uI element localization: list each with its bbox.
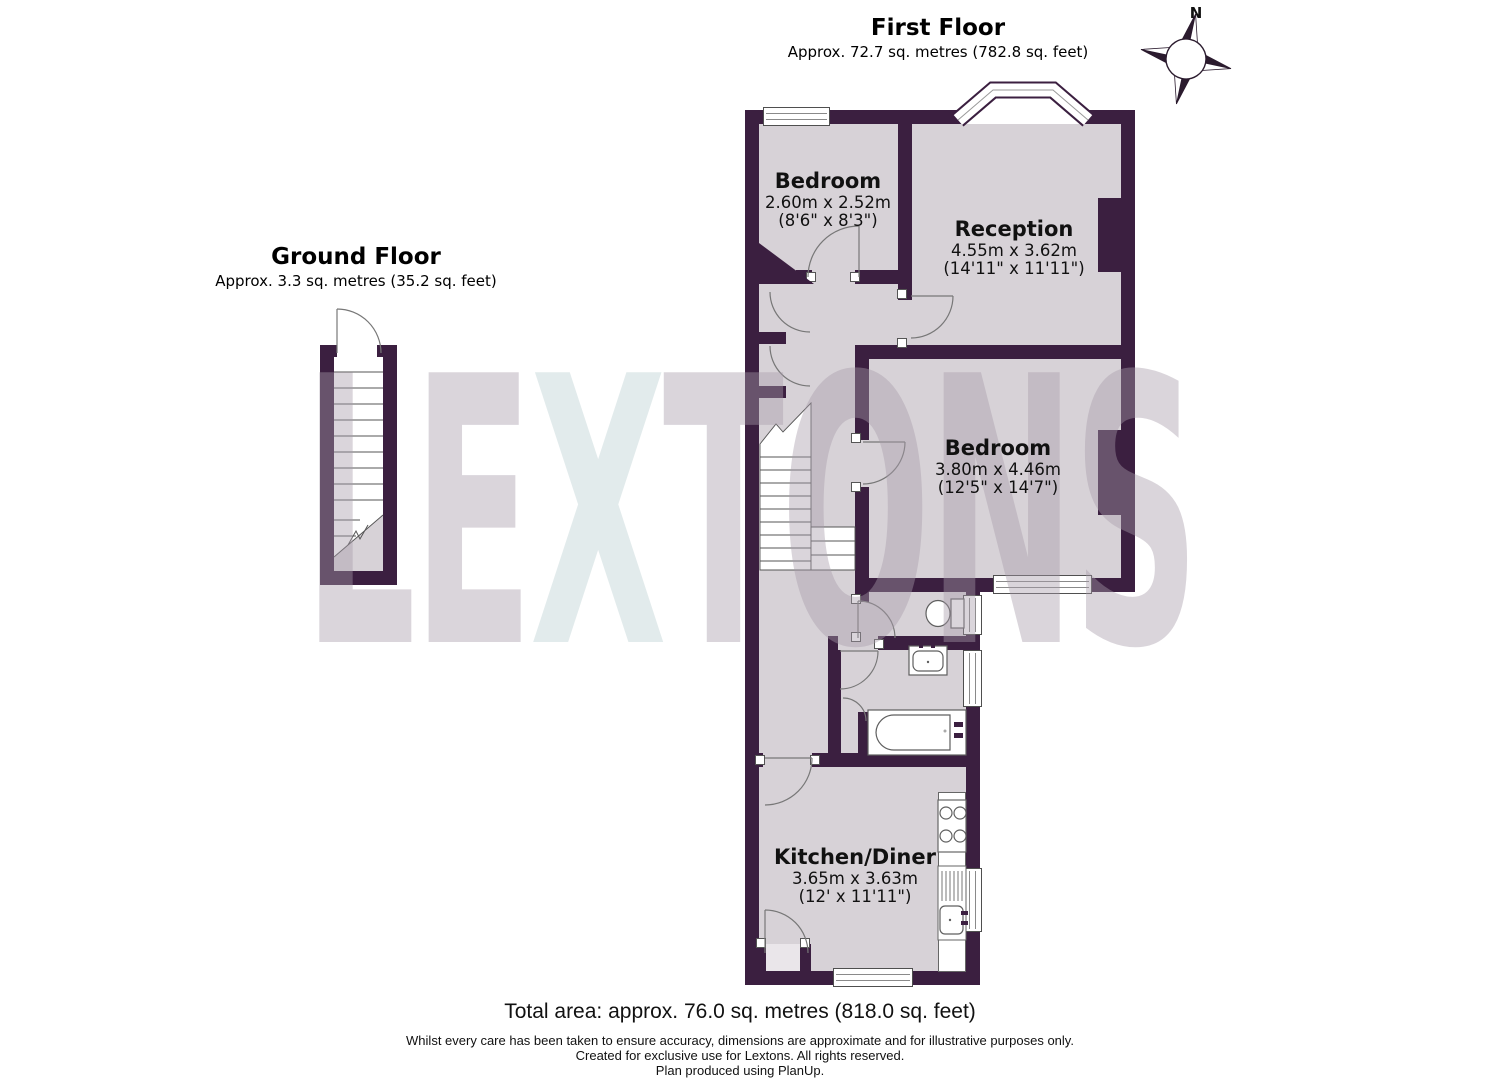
floorplan-canvas: First Floor Approx. 72.7 sq. metres (782… xyxy=(0,0,1485,1080)
chimney-breast xyxy=(1098,198,1123,272)
wall xyxy=(800,944,811,972)
wall xyxy=(855,352,869,440)
first-floor-name: First Floor xyxy=(788,16,1089,40)
first-floor-area: Approx. 72.7 sq. metres (782.8 sq. feet) xyxy=(788,43,1089,61)
wall xyxy=(320,345,337,357)
wall xyxy=(383,345,397,585)
bay-window-outline xyxy=(958,90,1088,120)
room-dim-metric: 4.55m x 3.62m xyxy=(943,242,1084,260)
window xyxy=(993,575,1092,594)
wall xyxy=(828,636,838,650)
plan-footer: Total area: approx. 76.0 sq. metres (818… xyxy=(406,1000,1074,1078)
wall xyxy=(828,650,841,753)
wall xyxy=(320,345,334,585)
room-label-bedroom2: Bedroom 3.80m x 4.46m (12'5" x 14'7") xyxy=(935,437,1061,497)
room-label-bedroom1: Bedroom 2.60m x 2.52m (8'6" x 8'3") xyxy=(765,170,891,230)
compass-icon: N xyxy=(1131,4,1240,114)
gf-door xyxy=(337,309,381,353)
compass-north-label: N xyxy=(1190,4,1203,22)
door-jamb xyxy=(810,755,820,765)
wall xyxy=(878,636,980,650)
wall xyxy=(759,332,786,344)
wall xyxy=(898,110,912,300)
wall xyxy=(745,110,759,985)
wall xyxy=(812,753,980,767)
plan-details-overlay: N xyxy=(0,0,1485,1080)
room-dim-metric: 3.80m x 4.46m xyxy=(935,461,1061,479)
door-jamb xyxy=(851,482,861,492)
entrance-recess xyxy=(766,944,800,971)
window xyxy=(833,968,913,987)
room-dim-imperial: (12'5" x 14'7") xyxy=(935,479,1061,497)
gf-stairwell xyxy=(334,357,383,571)
room-dim-metric: 2.60m x 2.52m xyxy=(765,194,891,212)
disclaimer-line-3: Plan produced using PlanUp. xyxy=(406,1063,1074,1078)
window xyxy=(963,650,982,707)
total-area-text: Total area: approx. 76.0 sq. metres (818… xyxy=(406,1000,1074,1024)
wall xyxy=(905,110,962,124)
door-jamb xyxy=(806,272,816,282)
wall xyxy=(377,345,397,357)
door-jamb xyxy=(851,594,861,604)
ground-floor-area: Approx. 3.3 sq. metres (35.2 sq. feet) xyxy=(215,272,497,290)
first-floor-title: First Floor Approx. 72.7 sq. metres (782… xyxy=(788,16,1089,61)
room-name: Kitchen/Diner xyxy=(774,846,936,870)
room-dim-imperial: (8'6" x 8'3") xyxy=(765,212,891,230)
wall xyxy=(858,712,868,753)
disclaimer-line-1: Whilst every care has been taken to ensu… xyxy=(406,1033,1074,1048)
door-jamb xyxy=(850,272,860,282)
room-dim-imperial: (12' x 11'11") xyxy=(774,888,936,906)
ground-floor-title: Ground Floor Approx. 3.3 sq. metres (35.… xyxy=(215,245,497,290)
bay-window-midline xyxy=(958,90,1088,120)
room-label-reception: Reception 4.55m x 3.62m (14'11" x 11'11"… xyxy=(943,218,1084,278)
disclaimer-line-2: Created for exclusive use for Lextons. A… xyxy=(406,1048,1074,1063)
wall xyxy=(855,270,898,284)
door-jamb xyxy=(755,755,765,765)
door-jamb xyxy=(756,938,766,948)
room-name: Reception xyxy=(943,218,1084,242)
room-name: Bedroom xyxy=(935,437,1061,461)
wall xyxy=(755,944,766,972)
room-dim-imperial: (14'11" x 11'11") xyxy=(943,260,1084,278)
kitchen-counter xyxy=(938,792,966,972)
chimney-breast xyxy=(1098,430,1123,515)
bay-window-glass xyxy=(958,90,1088,120)
room-dim-metric: 3.65m x 3.63m xyxy=(774,870,936,888)
wall xyxy=(759,386,786,398)
door-jamb xyxy=(800,938,810,948)
door-jamb xyxy=(897,289,907,299)
door-jamb xyxy=(851,433,861,443)
room-name: Bedroom xyxy=(765,170,891,194)
window xyxy=(763,107,830,126)
window xyxy=(963,595,982,635)
door-jamb xyxy=(874,639,884,649)
door-jamb xyxy=(851,632,861,642)
watermark-x: X xyxy=(530,300,663,730)
window xyxy=(963,868,982,932)
wall xyxy=(855,487,869,578)
bay-window xyxy=(958,90,1088,120)
door-jamb xyxy=(897,338,907,348)
wall xyxy=(320,571,397,585)
room-label-kitchen-diner: Kitchen/Diner 3.65m x 3.63m (12' x 11'11… xyxy=(774,846,936,906)
ground-floor-name: Ground Floor xyxy=(215,245,497,269)
